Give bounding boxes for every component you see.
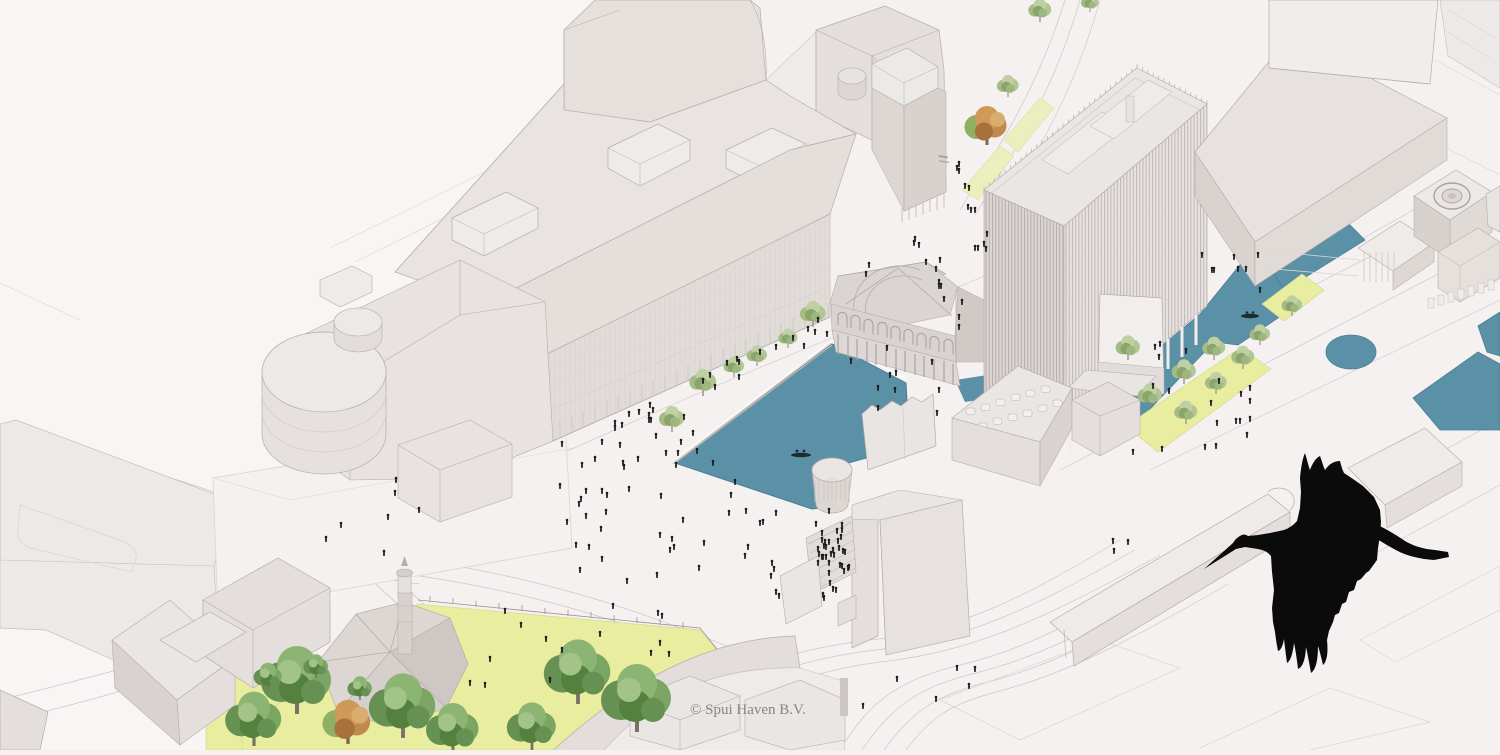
- svg-text:© Spui Haven B.V.: © Spui Haven B.V.: [690, 702, 806, 718]
